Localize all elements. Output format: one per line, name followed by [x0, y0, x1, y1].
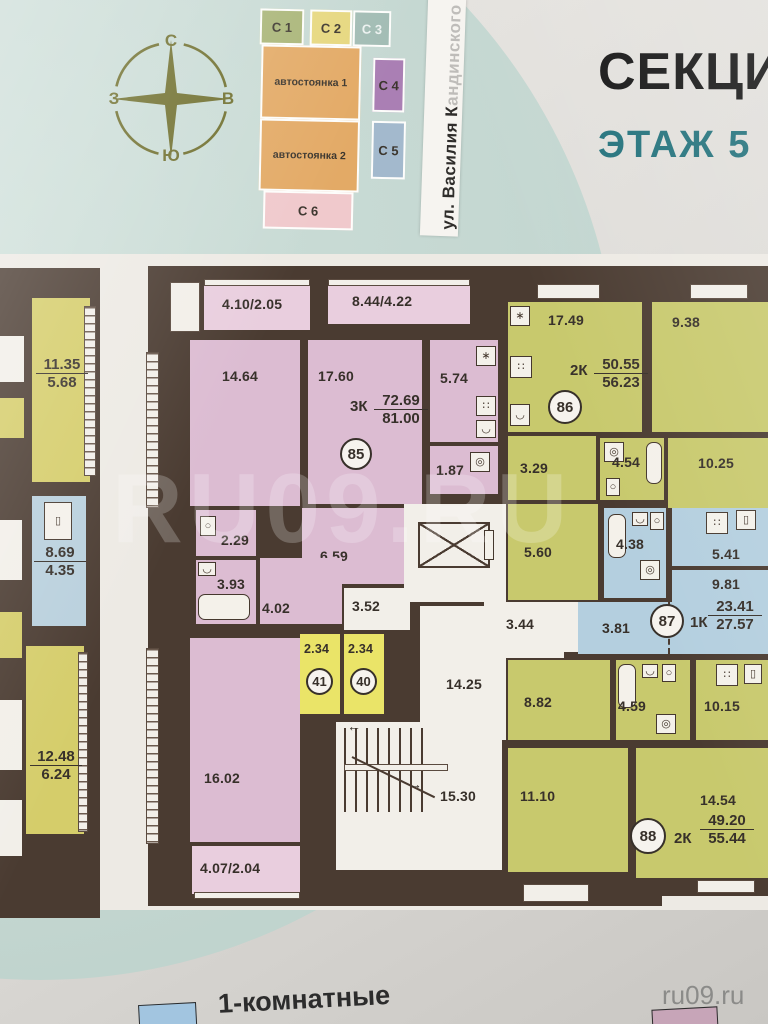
- apt88-areas: 49.20 55.44: [700, 812, 754, 848]
- apt88-room2-area: 14.54: [700, 792, 736, 808]
- apt86-hall2-area: 5.60: [524, 544, 552, 560]
- area-total: 55.44: [700, 830, 754, 847]
- street-name-visible: ул. Василия К: [438, 106, 461, 230]
- apt87-areas: 23.41 27.57: [708, 598, 762, 634]
- area-half: 5.68: [36, 374, 88, 391]
- apt87-bath-area: 4.38: [616, 536, 644, 552]
- stair-landing-rail: [344, 764, 448, 771]
- apt85-bath-area: 3.93: [217, 576, 245, 592]
- apt88-type: 2К: [674, 830, 692, 847]
- adjacent-fragment: [0, 398, 24, 438]
- balcony-rail: [204, 279, 310, 286]
- storage-40-area: 2.34: [348, 642, 373, 656]
- washer-icon: ◎: [640, 560, 660, 580]
- balcony-rail: [194, 892, 300, 899]
- elevator-shaft-icon: [418, 522, 490, 568]
- sink-icon: ◡: [642, 664, 658, 678]
- balcony-rail: [328, 279, 470, 286]
- apt85-room2-area: 17.60: [318, 368, 354, 384]
- stair-up-arrow-icon: ←: [347, 718, 361, 734]
- stairwell-area: 15.30: [440, 788, 476, 804]
- balcony-rail: [146, 352, 159, 508]
- apt85-room3-area: 16.02: [204, 770, 240, 786]
- area-living: 8.69: [34, 544, 86, 562]
- site-map-section-c3: С 3: [353, 10, 392, 47]
- bathtub-icon: [646, 442, 662, 484]
- stove-icon: ∷: [706, 512, 728, 534]
- apt85-balcony-right-area: 8.44/4.22: [352, 293, 412, 309]
- bathtub-icon: [198, 594, 250, 620]
- apt86-hall2: [508, 504, 598, 600]
- site-map-section-c4: С 4: [372, 58, 405, 113]
- area-living: 12.48: [30, 748, 82, 766]
- adjacent-loggia-b-area: 8.69 4.35: [34, 544, 86, 580]
- legend-one-room-label: 1-комнатные: [217, 980, 391, 1020]
- washer-icon: ◎: [470, 452, 490, 472]
- apt85-kitchen-area: 5.74: [440, 370, 468, 386]
- watermark-site: ru09.ru: [662, 980, 744, 1011]
- vent-icon: ∗: [476, 346, 496, 366]
- apt85-balcony-left-area: 4.10/2.05: [222, 296, 282, 312]
- area-half: 4.35: [34, 562, 86, 579]
- apt88-kitchen-area: 10.15: [704, 698, 740, 714]
- adjacent-loggia-c: [26, 646, 84, 834]
- area-total: 27.57: [708, 616, 762, 633]
- apt85-room3: [190, 638, 300, 842]
- apt88-number-badge: 88: [630, 818, 666, 854]
- area-living: 23.41: [708, 598, 762, 616]
- elevator-door-icon: [484, 530, 494, 560]
- compass-east-label: В: [222, 89, 234, 109]
- apt87-type: 1К: [690, 614, 708, 631]
- zone-divider: [672, 568, 768, 570]
- apt85-hall-area: 4.02: [262, 600, 290, 616]
- apt86-kitchen-area: 10.25: [698, 455, 734, 471]
- area-living: 72.69: [374, 392, 428, 410]
- legend: 1-комнатные: [127, 958, 649, 1024]
- apt85-areas: 72.69 81.00: [374, 392, 428, 428]
- toilet-icon: ○: [606, 478, 620, 496]
- adjacent-loggia-a-area: 11.35 5.68: [36, 356, 88, 392]
- stove-icon: ∷: [510, 356, 532, 378]
- apt86-hall-area: 3.29: [520, 460, 548, 476]
- floor-label: ЭТАЖ 5: [598, 124, 751, 167]
- apt86-bath-area: 4.54: [612, 454, 640, 470]
- site-map-section-c5: С 5: [371, 121, 406, 180]
- fridge-icon: ▯: [44, 502, 72, 540]
- adjacent-fragment: [0, 612, 22, 658]
- apt85-balcony-bottom-area: 4.07/2.04: [200, 860, 260, 876]
- balcony-rail: [78, 652, 88, 832]
- toilet-icon: ○: [200, 516, 216, 536]
- window: [537, 284, 600, 299]
- poster-photo: С В Ю З С 1 С 2 С 3 автостоянка 1 С 4 ав…: [0, 0, 768, 1024]
- stove-icon: ∷: [716, 664, 738, 686]
- apt86-areas: 50.55 56.23: [594, 356, 648, 392]
- common-hall-small-area: 3.52: [352, 598, 380, 614]
- adjacent-fragment: [0, 700, 22, 770]
- balcony: [523, 884, 589, 902]
- apt86-room2: [652, 302, 768, 432]
- site-map-parking-1: автостоянка 1: [260, 44, 362, 120]
- common-corridor-area: 14.25: [446, 676, 482, 692]
- toilet-icon: ○: [662, 664, 676, 682]
- adjacent-fragment: [0, 800, 22, 856]
- vent-icon: ∗: [510, 306, 530, 326]
- site-map-parking-2: автостоянка 2: [259, 118, 360, 192]
- adjacent-fragment: [0, 520, 22, 580]
- apt88-hall-area: 8.82: [524, 694, 552, 710]
- site-map: С 1 С 2 С 3 автостоянка 1 С 4 автостоянк…: [248, 4, 423, 240]
- street-name-faded: андинского: [442, 4, 465, 106]
- window: [170, 282, 200, 332]
- apt85-number-badge: 85: [340, 438, 372, 470]
- sink-icon: ◡: [632, 512, 648, 526]
- apt87-number-badge: 87: [650, 604, 684, 638]
- compass-south-label: Ю: [162, 146, 180, 166]
- area-total: 81.00: [374, 410, 428, 427]
- area-total: 56.23: [594, 374, 648, 391]
- apt85-type: 3К: [350, 398, 368, 415]
- apt86-number-badge: 86: [548, 390, 582, 424]
- area-living: 50.55: [594, 356, 648, 374]
- apt87-room-area: 9.81: [712, 576, 740, 592]
- appliance-icon: ▯: [736, 510, 756, 530]
- apt86-type: 2К: [570, 362, 588, 379]
- sink-icon: ◡: [476, 420, 496, 438]
- apt86-kitchen: [668, 438, 768, 508]
- sink-icon: ◡: [198, 562, 216, 576]
- compass-west-label: З: [109, 89, 120, 109]
- apt85-room1: [190, 340, 300, 506]
- washer-icon: ◎: [656, 714, 676, 734]
- area-half: 6.24: [30, 766, 82, 783]
- apt85-room1-area: 14.64: [222, 368, 258, 384]
- area-living: 11.35: [36, 356, 88, 374]
- adjacent-fragment: [0, 336, 24, 382]
- storage-40-number-badge: 40: [350, 668, 377, 695]
- common-hall-area: 3.44: [506, 616, 534, 632]
- stair-down-arrow-icon: →: [408, 776, 422, 792]
- site-map-section-c2: С 2: [310, 9, 353, 46]
- apt88-bath-area: 4.59: [618, 698, 646, 714]
- apt86-room1-area: 17.49: [548, 312, 584, 328]
- site-map-section-c6: С 6: [263, 191, 354, 231]
- apt86-room2-area: 9.38: [672, 314, 700, 330]
- balcony-rail: [146, 648, 159, 844]
- legend-one-room-swatch: [138, 1002, 197, 1024]
- compass-rose: С В Ю З: [96, 24, 246, 174]
- apt85-bath-combined-area: 1.87: [436, 462, 464, 478]
- area-living: 49.20: [700, 812, 754, 830]
- adjacent-loggia-c-area: 12.48 6.24: [30, 748, 82, 784]
- apt85-wc-area: 2.29: [221, 532, 249, 548]
- apt88-room1-area: 11.10: [520, 788, 555, 804]
- page-title: СЕКЦИЯ: [598, 42, 768, 104]
- toilet-icon: ○: [650, 512, 664, 530]
- apt87-hall-area: 3.81: [602, 620, 630, 636]
- compass-north-label: С: [165, 31, 177, 51]
- site-map-section-c1: С 1: [260, 8, 305, 45]
- stove-icon: ∷: [476, 396, 496, 416]
- storage-41-number-badge: 41: [306, 668, 333, 695]
- appliance-icon: ▯: [744, 664, 762, 684]
- window: [690, 284, 748, 299]
- storage-41-area: 2.34: [304, 642, 329, 656]
- apt88-room1: [508, 748, 628, 872]
- apt87-kitchen-area: 5.41: [712, 546, 740, 562]
- window: [697, 880, 755, 893]
- sink-icon: ◡: [510, 404, 530, 426]
